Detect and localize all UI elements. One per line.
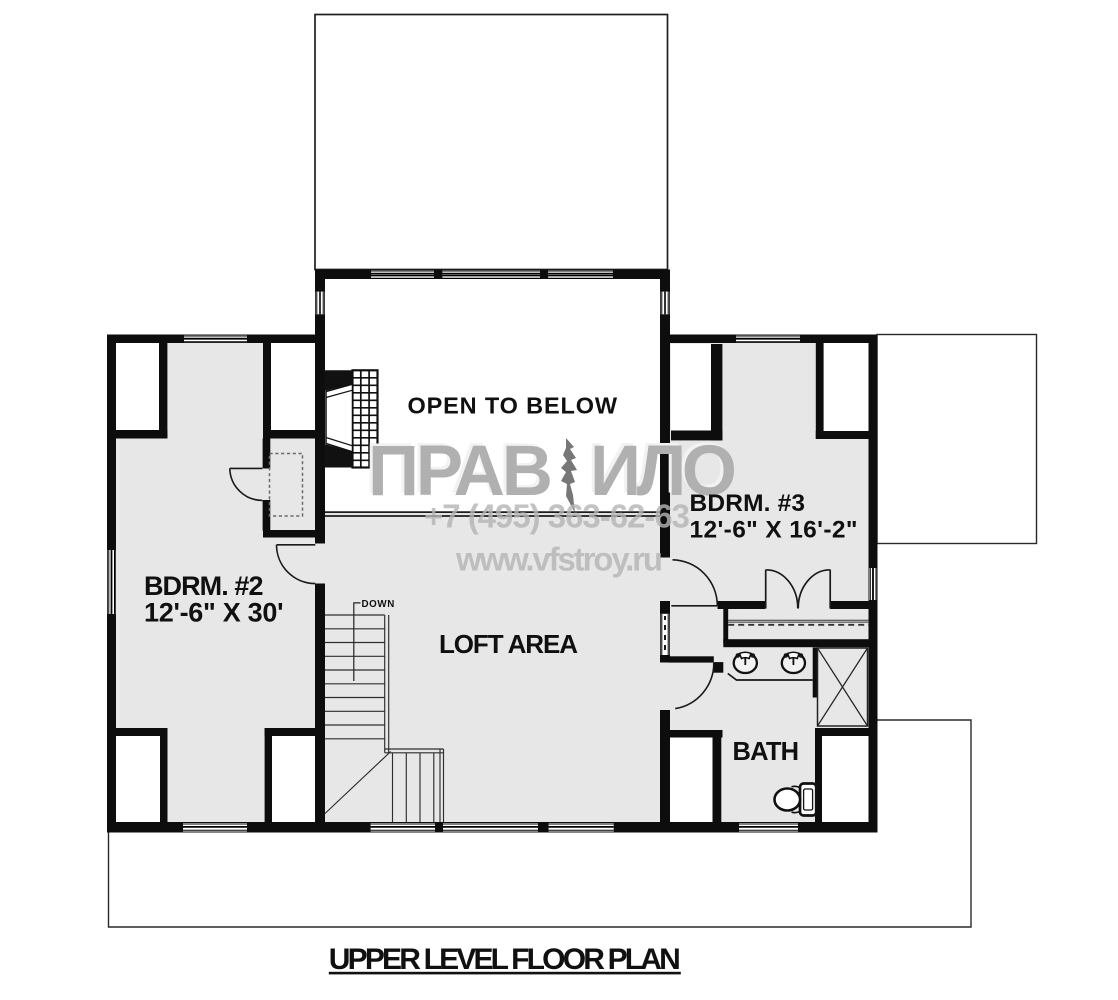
svg-text:+7 (495) 363-62-63: +7 (495) 363-62-63 (424, 498, 690, 535)
svg-text:www.vfstroy.ru: www.vfstroy.ru (455, 541, 663, 578)
svg-text:UPPER LEVEL FLOOR PLAN: UPPER LEVEL FLOOR PLAN (329, 943, 681, 976)
svg-text:12'-6" X 30': 12'-6" X 30' (144, 598, 284, 628)
svg-text:BDRM. #3: BDRM. #3 (690, 490, 806, 517)
svg-text:DOWN: DOWN (362, 599, 395, 610)
svg-text:LOFT AREA: LOFT AREA (439, 629, 578, 659)
svg-text:BDRM. #2: BDRM. #2 (144, 571, 264, 601)
svg-text:12'-6" X 16'-2": 12'-6" X 16'-2" (690, 517, 858, 544)
svg-text:BATH: BATH (733, 738, 800, 766)
svg-text:OPEN TO BELOW: OPEN TO BELOW (408, 393, 618, 419)
